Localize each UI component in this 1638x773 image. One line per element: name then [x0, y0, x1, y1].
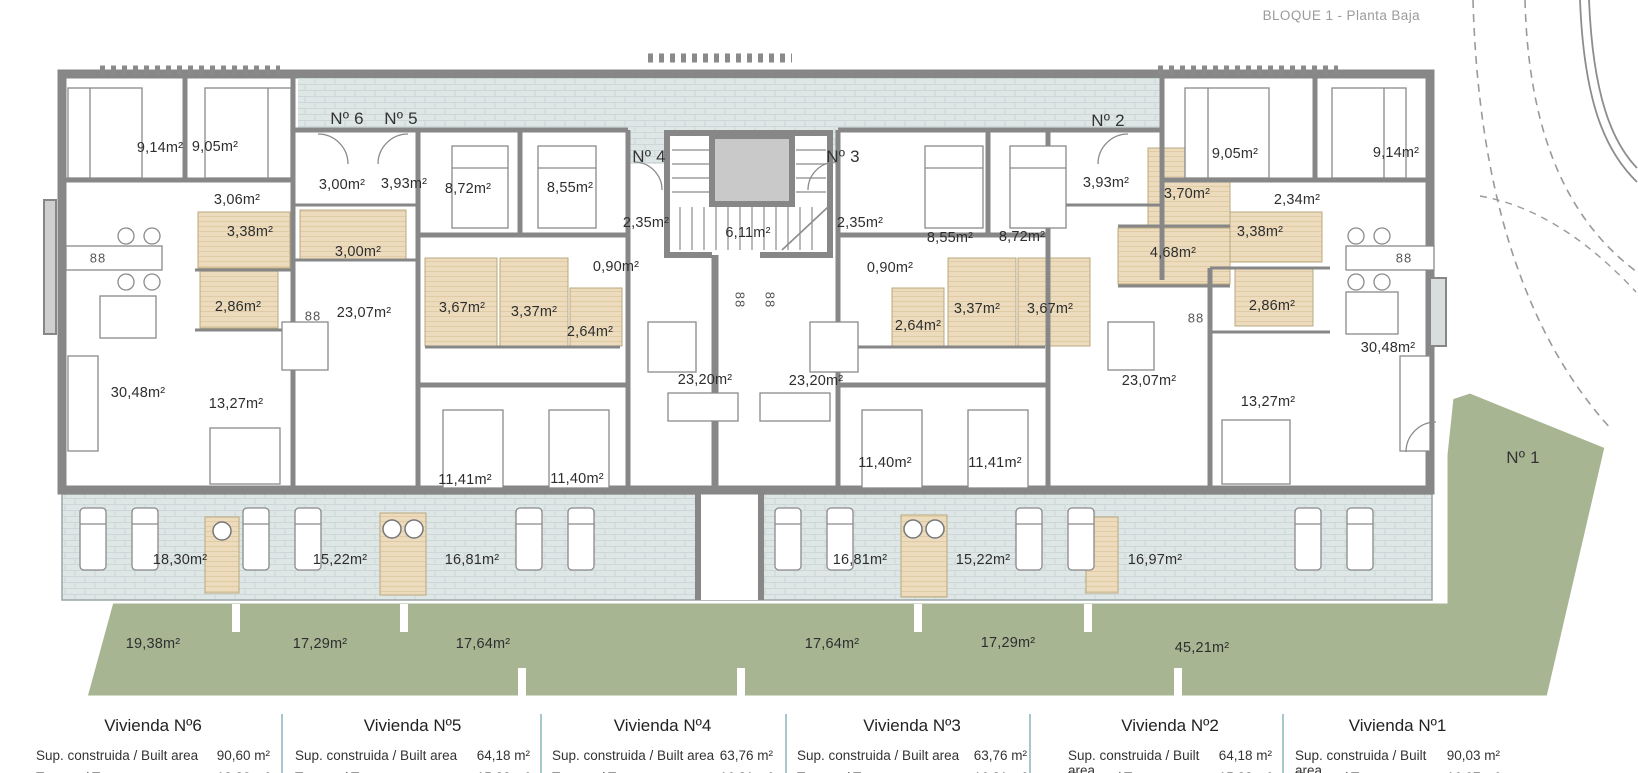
- legend-column-divider: [281, 714, 283, 773]
- legend-row-value: 64,18 m²: [477, 748, 530, 763]
- legend-column-divider: [1282, 714, 1284, 773]
- legend-row-value: 63,76 m²: [720, 748, 773, 763]
- legend-row-label: Sup. construida / Built area: [36, 748, 198, 763]
- room-area-label: 3,38m²: [1237, 224, 1283, 240]
- garden-area-label: 17,29m²: [293, 636, 348, 652]
- room-area-label: 3,37m²: [511, 304, 557, 320]
- room-area-label: 23,20m²: [678, 372, 733, 388]
- room-area-label: 0,90m²: [867, 260, 913, 276]
- legend-unit-name: Vivienda Nº6: [36, 716, 270, 736]
- room-area-label: 2,86m²: [215, 299, 261, 315]
- legend-unit-name: Vivienda Nº4: [552, 716, 773, 736]
- room-area-label: 23,07m²: [1122, 373, 1177, 389]
- stove-burners-icon: 88: [1188, 311, 1204, 326]
- room-area-label: 2,35m²: [623, 215, 669, 231]
- room-area-label: 13,27m²: [209, 396, 264, 412]
- room-area-label: 13,27m²: [1241, 394, 1296, 410]
- room-area-label: 3,00m²: [335, 244, 381, 260]
- unit-number-label: Nº 6: [330, 109, 363, 129]
- side-terrace-strip: [1430, 278, 1446, 346]
- room-area-label: 4,68m²: [1150, 245, 1196, 261]
- room-area-label: 23,20m²: [789, 373, 844, 389]
- unit-number-label: Nº 2: [1091, 111, 1124, 131]
- garden-area-label: 17,29m²: [981, 635, 1036, 651]
- garden-area-label: 17,64m²: [456, 636, 511, 652]
- legend-row-value: 63,76 m²: [974, 748, 1027, 763]
- room-area-label: 9,05m²: [1212, 146, 1258, 162]
- room-area-label: 3,37m²: [954, 301, 1000, 317]
- room-area-label: 9,14m²: [1373, 145, 1419, 161]
- room-area-label: 8,55m²: [547, 180, 593, 196]
- legend-row-label: Sup. construida / Built area: [552, 748, 714, 763]
- stove-burners-icon: 88: [733, 292, 748, 308]
- room-area-label: 30,48m²: [111, 385, 166, 401]
- room-area-label: 3,67m²: [1027, 301, 1073, 317]
- room-area-label: 2,64m²: [567, 324, 613, 340]
- garden-area-label: 19,38m²: [126, 636, 181, 652]
- floor-plan-screenshot: BLOQUE 1 - Planta Baja 9,14m²9,05m²3,06m…: [0, 0, 1638, 773]
- room-area-label: 8,55m²: [927, 230, 973, 246]
- legend-unit-name: Vivienda Nº3: [797, 716, 1027, 736]
- legend-row-value: 90,60 m²: [217, 748, 270, 763]
- room-area-label: 2,34m²: [1274, 192, 1320, 208]
- legend-unit-name: Vivienda Nº2: [1068, 716, 1272, 736]
- legend-column-divider: [785, 714, 787, 773]
- room-area-label: 3,00m²: [319, 177, 365, 193]
- legend-row-label: Sup. construida / Built area: [797, 748, 959, 763]
- room-area-label: 8,72m²: [445, 181, 491, 197]
- terrace-area-label: 16,81m²: [445, 552, 500, 568]
- stove-burners-icon: 88: [1396, 251, 1412, 266]
- room-area-label: 3,06m²: [214, 192, 260, 208]
- room-area-label: 11,41m²: [438, 472, 492, 488]
- unit-number-label: Nº 5: [384, 109, 417, 129]
- room-area-label: 2,64m²: [895, 318, 941, 334]
- site-boundary-lines: [1473, 0, 1637, 430]
- plan-title: BLOQUE 1 - Planta Baja: [1263, 8, 1420, 23]
- room-area-label: 2,35m²: [837, 215, 883, 231]
- room-area-label: 3,93m²: [1083, 175, 1129, 191]
- unit-number-label: Nº 3: [826, 147, 859, 167]
- unit-number-label: Nº 1: [1506, 448, 1539, 468]
- room-area-label: 9,05m²: [192, 139, 238, 155]
- legend-column-divider: [540, 714, 542, 773]
- terrace-area-label: 16,97m²: [1128, 552, 1183, 568]
- legend-row-built-area: Sup. construida / Built area63,76 m²: [797, 748, 1027, 763]
- terrace-area-label: 16,81m²: [833, 552, 888, 568]
- legend-unit-name: Vivienda Nº5: [295, 716, 530, 736]
- terrace-area-label: 18,30m²: [153, 552, 208, 568]
- room-area-label: 8,72m²: [999, 229, 1045, 245]
- room-area-label: 11,41m²: [968, 455, 1022, 471]
- room-area-label: 23,07m²: [337, 305, 392, 321]
- unit-number-label: Nº 4: [632, 147, 665, 167]
- room-area-label: 9,14m²: [137, 140, 183, 156]
- stove-burners-icon: 88: [305, 309, 321, 324]
- garden-area-label: 45,21m²: [1175, 640, 1230, 656]
- room-area-label: 0,90m²: [593, 259, 639, 275]
- legend-row-built-area: Sup. construida / Built area90,60 m²: [36, 748, 270, 763]
- stove-burners-icon: 88: [90, 251, 106, 266]
- legend-unit-name: Vivienda Nº1: [1295, 716, 1500, 736]
- room-area-label: 3,67m²: [439, 300, 485, 316]
- terrace-area-label: 15,22m²: [956, 552, 1011, 568]
- room-area-label: 11,40m²: [858, 455, 912, 471]
- room-area-label: 3,93m²: [381, 176, 427, 192]
- room-area-label: 30,48m²: [1361, 340, 1416, 356]
- elevator: [712, 136, 792, 204]
- garden-area-label: 17,64m²: [805, 636, 860, 652]
- legend-row-built-area: Sup. construida / Built area64,18 m²: [295, 748, 530, 763]
- room-area-label: 11,40m²: [550, 471, 604, 487]
- legend-column-divider: [1029, 714, 1031, 773]
- planter-strip: [44, 200, 56, 334]
- room-area-label: 3,38m²: [227, 224, 273, 240]
- room-area-label: 2,86m²: [1249, 298, 1295, 314]
- room-area-label: 6,11m²: [725, 225, 770, 241]
- trellis-dashes: [100, 58, 1338, 70]
- legend-row-built-area: Sup. construida / Built area63,76 m²: [552, 748, 773, 763]
- room-area-label: 3,70m²: [1164, 186, 1210, 202]
- terrace-area-label: 15,22m²: [313, 552, 368, 568]
- legend-row-label: Sup. construida / Built area: [295, 748, 457, 763]
- stove-burners-icon: 88: [763, 292, 778, 308]
